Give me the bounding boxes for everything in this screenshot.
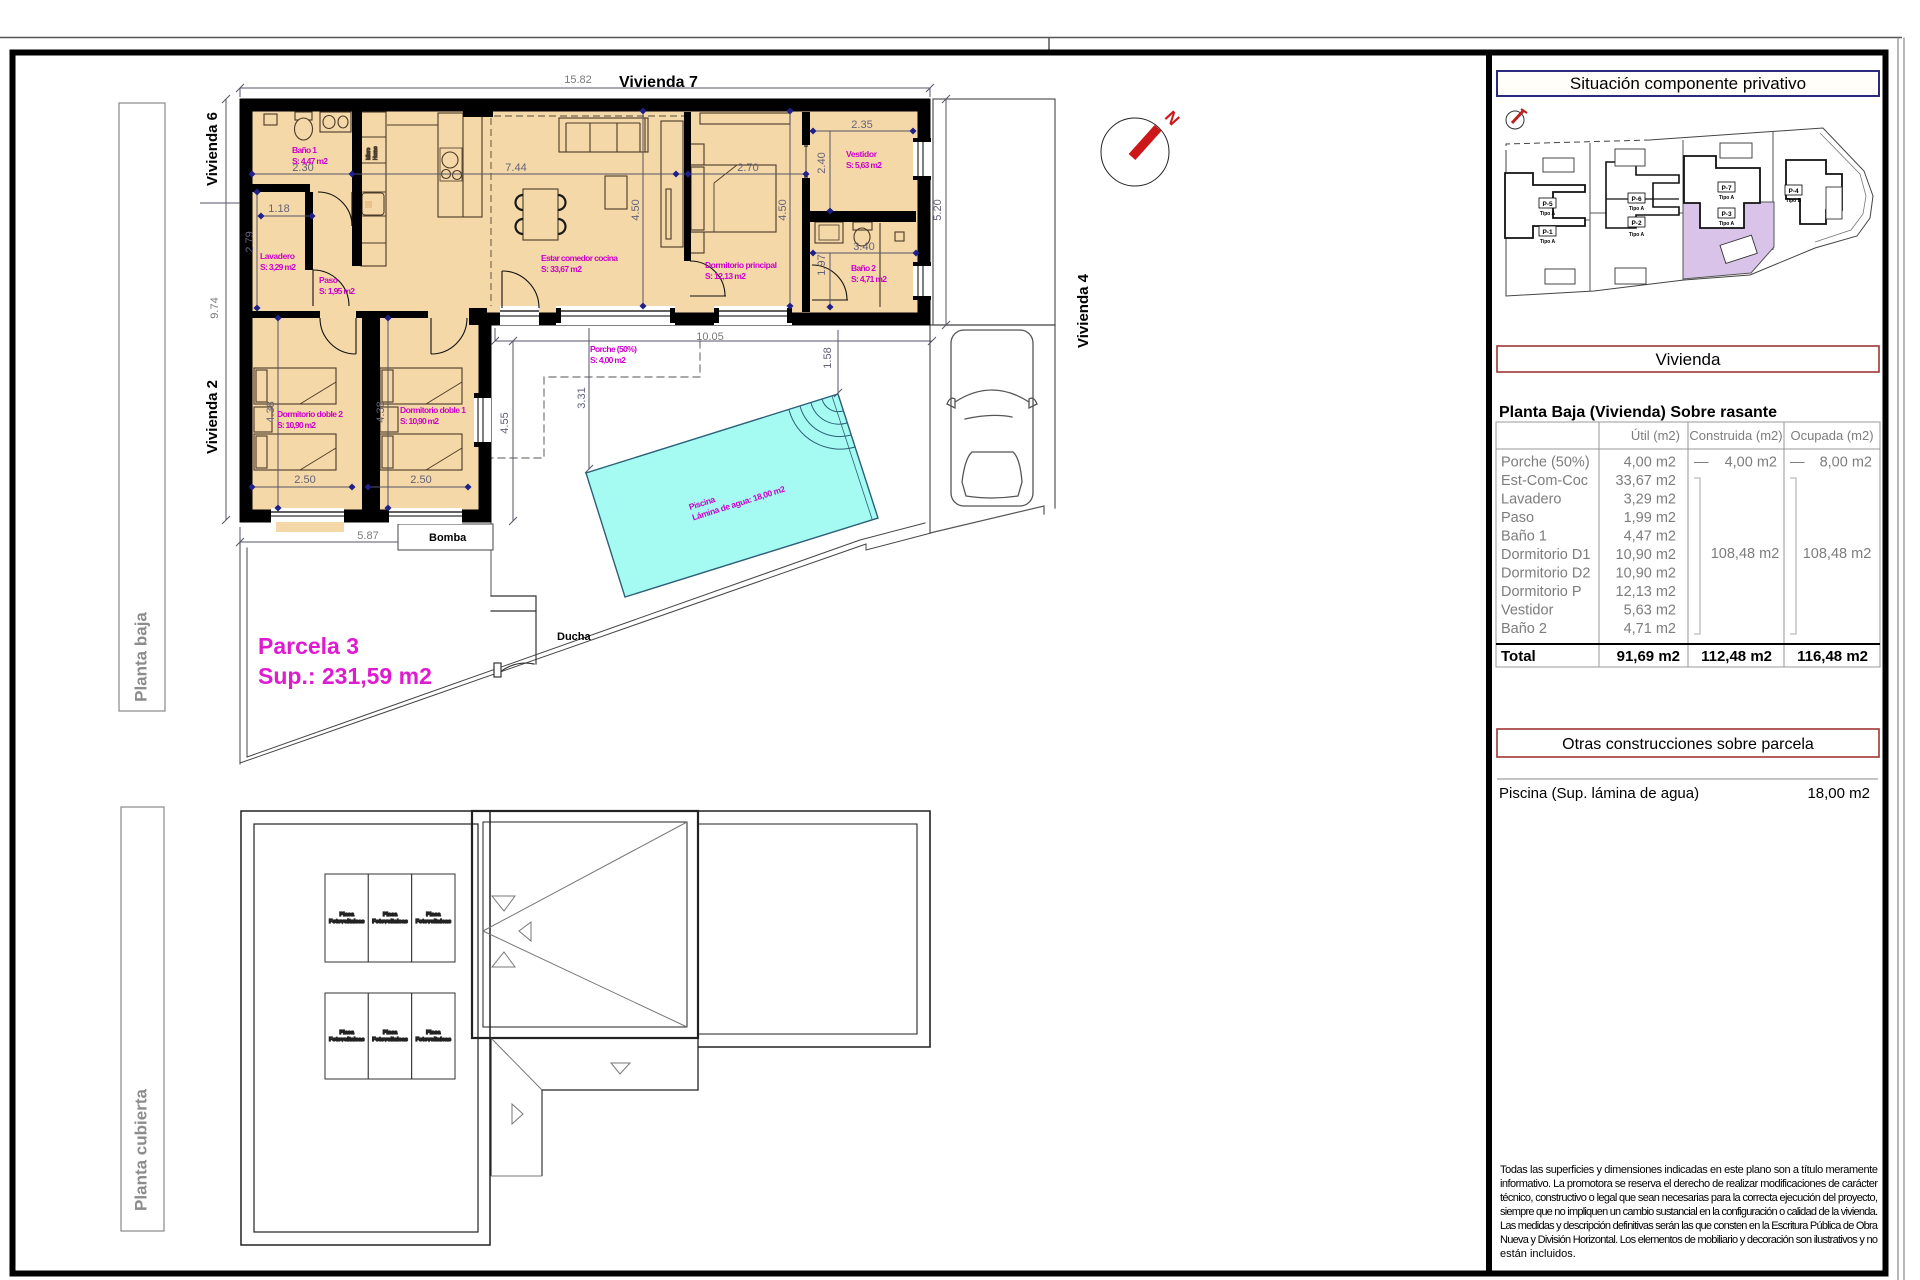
svg-text:P-2: P-2 (1631, 220, 1642, 227)
svg-text:2.50: 2.50 (410, 474, 431, 486)
svg-text:1.97: 1.97 (816, 254, 828, 275)
svg-text:Tipo A: Tipo A (1629, 206, 1645, 212)
svg-text:10.05: 10.05 (696, 331, 724, 343)
svg-text:Planta baja: Planta baja (131, 612, 150, 702)
svg-text:91,69 m2: 91,69 m2 (1617, 648, 1680, 665)
svg-text:Tipo A: Tipo A (1540, 211, 1556, 217)
svg-text:3.31: 3.31 (576, 387, 588, 408)
svg-text:Fotovoltaicas: Fotovoltaicas (329, 1037, 364, 1043)
svg-text:Est-Com-Coc: Est-Com-Coc (1501, 473, 1588, 489)
svg-text:Placa: Placa (340, 1030, 355, 1036)
svg-text:Vivienda 7: Vivienda 7 (619, 74, 698, 91)
svg-text:2.70: 2.70 (737, 162, 758, 174)
svg-text:4.50: 4.50 (777, 199, 789, 220)
svg-text:P-4: P-4 (1788, 188, 1799, 195)
svg-text:5,63 m2: 5,63 m2 (1624, 603, 1676, 619)
svg-text:Dormitorio D2: Dormitorio D2 (1501, 566, 1590, 582)
svg-text:Ocupada (m2): Ocupada (m2) (1790, 428, 1873, 443)
svg-text:LavaderoS: 3,29 m2: LavaderoS: 3,29 m2 (260, 251, 296, 272)
svg-text:18,00 m2: 18,00 m2 (1807, 785, 1870, 802)
svg-text:Vivienda 6: Vivienda 6 (204, 112, 221, 186)
svg-text:9.74: 9.74 (209, 297, 221, 318)
svg-text:112,48 m2: 112,48 m2 (1701, 648, 1772, 665)
svg-text:Porche (50%): Porche (50%) (1501, 455, 1590, 471)
svg-text:Otras construcciones sobre par: Otras construcciones sobre parcela (1562, 736, 1814, 753)
svg-text:4,00 m2: 4,00 m2 (1725, 455, 1777, 471)
svg-text:5.87: 5.87 (357, 530, 378, 542)
svg-text:1,99 m2: 1,99 m2 (1624, 510, 1676, 526)
svg-text:5.20: 5.20 (932, 199, 944, 220)
svg-text:3.40: 3.40 (853, 241, 874, 253)
svg-text:Total: Total (1501, 648, 1536, 665)
svg-text:4.38: 4.38 (265, 401, 277, 422)
svg-text:3,29 m2: 3,29 m2 (1624, 492, 1676, 508)
svg-text:4,00 m2: 4,00 m2 (1624, 455, 1676, 471)
svg-text:Útil (m2): Útil (m2) (1631, 428, 1680, 443)
svg-text:Tipo B: Tipo B (1786, 198, 1802, 204)
svg-text:116,48 m2: 116,48 m2 (1797, 648, 1868, 665)
svg-text:Construida (m2): Construida (m2) (1689, 428, 1782, 443)
svg-text:Paso: Paso (1501, 510, 1534, 526)
svg-text:1.18: 1.18 (268, 203, 289, 215)
svg-text:Placa: Placa (340, 912, 355, 918)
svg-text:Tipo A: Tipo A (1719, 195, 1735, 201)
svg-text:Situación componente privativo: Situación componente privativo (1570, 74, 1806, 93)
svg-text:Baño 2: Baño 2 (1501, 621, 1547, 637)
svg-text:Dormitorio P: Dormitorio P (1501, 584, 1582, 600)
svg-text:10,90 m2: 10,90 m2 (1616, 566, 1676, 582)
svg-text:Dormitorio D1: Dormitorio D1 (1501, 547, 1590, 563)
svg-text:Horno: Horno (373, 146, 379, 160)
svg-text:P-6: P-6 (1631, 196, 1642, 203)
svg-text:Fotovoltaicas: Fotovoltaicas (416, 919, 451, 925)
svg-text:Vivienda 4: Vivienda 4 (1075, 273, 1092, 348)
svg-text:Fotovoltaicas: Fotovoltaicas (372, 919, 407, 925)
svg-text:Fotovoltaicas: Fotovoltaicas (372, 1037, 407, 1043)
svg-text:Las medidas y descripción defi: Las medidas y descripción definitivas se… (1500, 1220, 1879, 1232)
svg-text:Placa: Placa (383, 912, 398, 918)
svg-text:P-7: P-7 (1721, 185, 1732, 192)
svg-text:Ducha: Ducha (557, 631, 592, 643)
svg-text:Baño 1: Baño 1 (1501, 529, 1547, 545)
svg-text:Lavadero: Lavadero (1501, 492, 1561, 508)
svg-text:Planta cubierta: Planta cubierta (131, 1089, 150, 1211)
svg-text:—: — (1790, 455, 1805, 471)
svg-text:Todas las superficies y dimens: Todas las superficies y dimensiones indi… (1500, 1164, 1878, 1176)
svg-text:12,13 m2: 12,13 m2 (1616, 584, 1676, 600)
svg-text:108,48 m2: 108,48 m2 (1711, 546, 1780, 562)
svg-text:Vivienda: Vivienda (1656, 350, 1721, 369)
svg-text:Placa: Placa (383, 1030, 398, 1036)
svg-text:P-5: P-5 (1542, 201, 1553, 208)
svg-text:8,00 m2: 8,00 m2 (1820, 455, 1872, 471)
svg-text:Tipo A: Tipo A (1719, 221, 1735, 227)
svg-text:33,67 m2: 33,67 m2 (1616, 473, 1676, 489)
svg-text:VestidorS: 5,63 m2: VestidorS: 5,63 m2 (846, 149, 882, 170)
svg-text:10,90 m2: 10,90 m2 (1616, 547, 1676, 563)
svg-text:Fotovoltaicas: Fotovoltaicas (416, 1037, 451, 1043)
svg-text:Planta Baja (Vivienda) Sobre r: Planta Baja (Vivienda) Sobre rasante (1499, 404, 1777, 421)
svg-text:P-3: P-3 (1721, 211, 1732, 218)
svg-text:2.79: 2.79 (244, 231, 256, 252)
svg-text:—: — (1694, 455, 1709, 471)
svg-text:2.40: 2.40 (816, 152, 828, 173)
svg-text:Fotovoltaicas: Fotovoltaicas (329, 919, 364, 925)
svg-text:Vestidor: Vestidor (1501, 603, 1554, 619)
svg-text:Nueva y División Horizontal. L: Nueva y División Horizontal. Los element… (1500, 1234, 1878, 1246)
svg-text:siempre que no impliquen un ca: siempre que no impliquen un cambio susta… (1500, 1206, 1878, 1218)
svg-text:Vivienda 2: Vivienda 2 (204, 380, 221, 454)
svg-text:4,47 m2: 4,47 m2 (1624, 529, 1676, 545)
svg-text:108,48 m2: 108,48 m2 (1803, 546, 1872, 562)
svg-text:4,71 m2: 4,71 m2 (1624, 621, 1676, 637)
svg-text:Micro: Micro (366, 148, 372, 160)
svg-text:informativo. La promotora se r: informativo. La promotora se reserva el … (1500, 1178, 1878, 1190)
svg-text:4.50: 4.50 (630, 199, 642, 220)
svg-text:Piscina (Sup. lámina de agua): Piscina (Sup. lámina de agua) (1499, 785, 1699, 802)
svg-text:técnico, constructivo o legal: técnico, constructivo o legal que sean n… (1500, 1192, 1878, 1204)
svg-text:15.82: 15.82 (564, 74, 592, 86)
svg-text:están incluidos.: están incluidos. (1500, 1248, 1576, 1260)
svg-text:Tipo A: Tipo A (1629, 232, 1645, 238)
svg-text:4.38: 4.38 (375, 401, 387, 422)
svg-text:Tipo A: Tipo A (1540, 239, 1556, 245)
svg-text:Bomba: Bomba (429, 532, 467, 544)
svg-text:1.58: 1.58 (822, 347, 834, 368)
svg-text:2.50: 2.50 (294, 474, 315, 486)
svg-text:Placa: Placa (426, 1030, 441, 1036)
svg-text:Placa: Placa (426, 912, 441, 918)
svg-text:P-1: P-1 (1542, 229, 1553, 236)
svg-text:2.35: 2.35 (851, 119, 872, 131)
svg-text:4.55: 4.55 (499, 412, 511, 433)
svg-text:7.44: 7.44 (505, 162, 526, 174)
